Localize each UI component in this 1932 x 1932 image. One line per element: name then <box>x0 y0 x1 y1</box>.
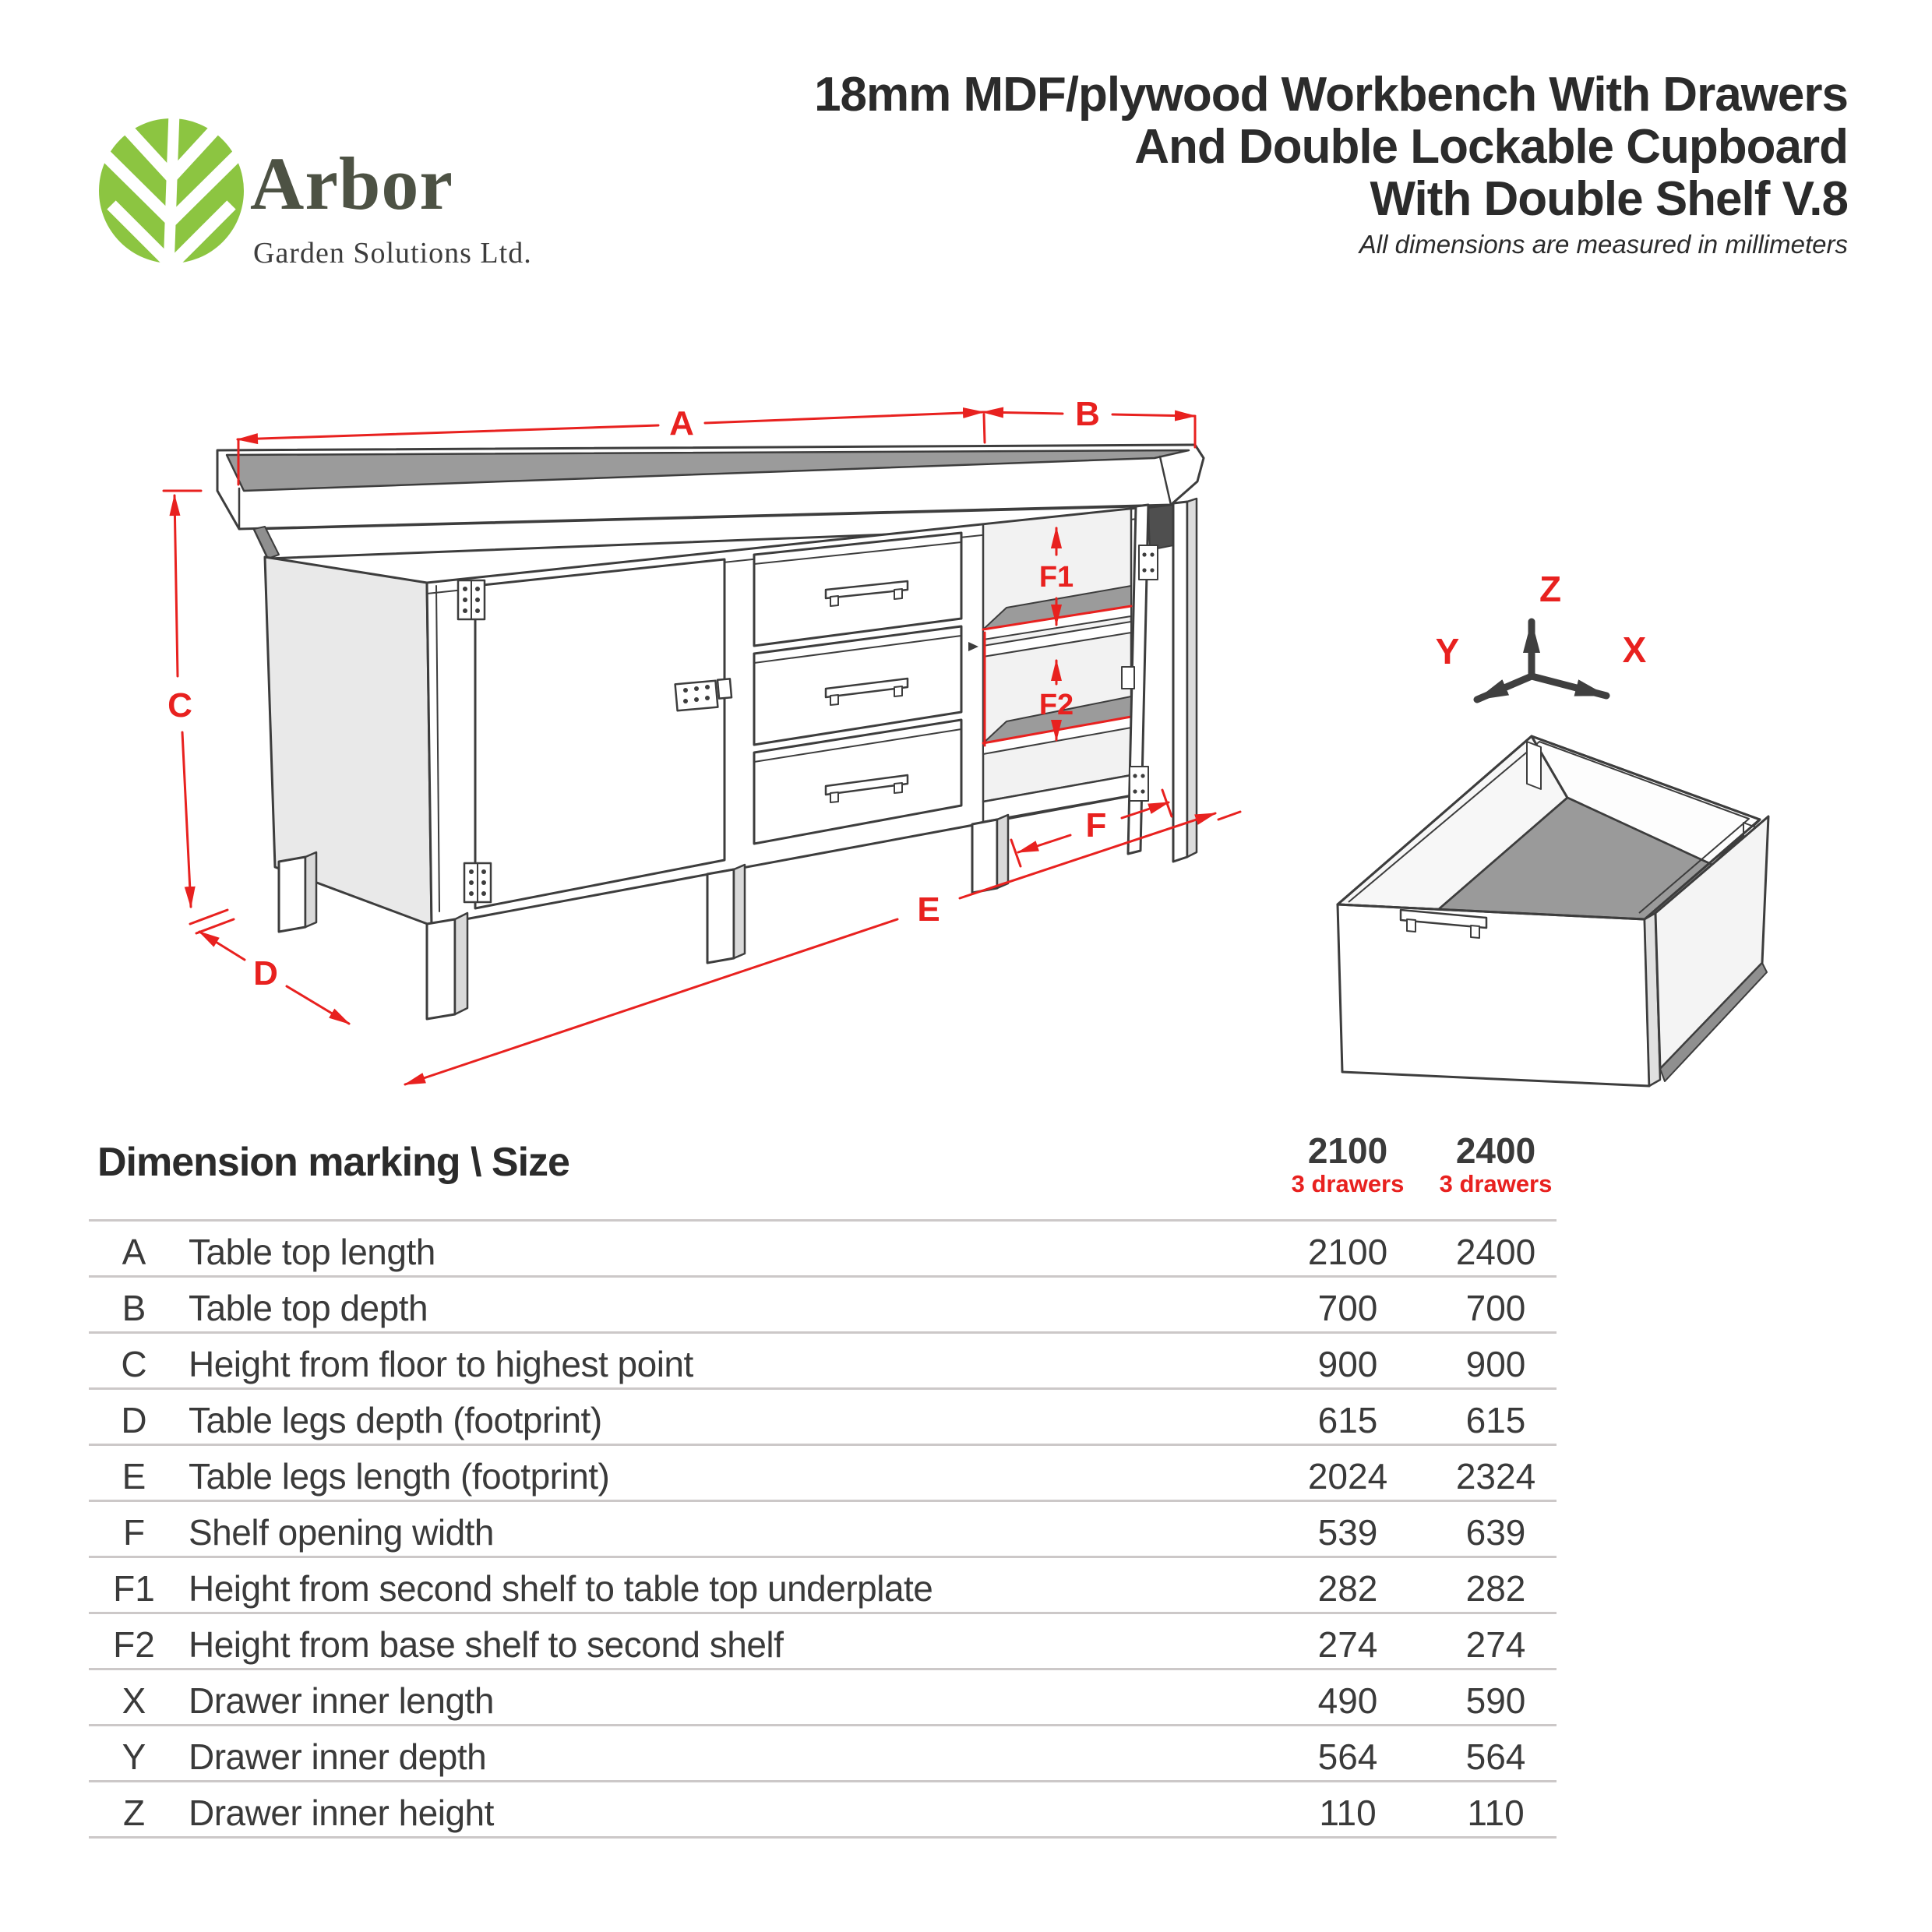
value-2100: 2100 <box>1270 1231 1426 1273</box>
brand-name: Arbor <box>250 140 453 227</box>
drawer-stack <box>754 533 978 844</box>
table-row: F2 Height from base shelf to second shel… <box>89 1612 1557 1670</box>
column-header-2400: 2400 <box>1418 1130 1574 1172</box>
value-2400: 564 <box>1418 1736 1574 1778</box>
page-title-line2: And Double Lockable Cupboard <box>814 121 1848 173</box>
dimension-description: Table legs length (footprint) <box>189 1455 609 1497</box>
value-2400: 639 <box>1418 1511 1574 1553</box>
value-2100: 110 <box>1270 1792 1426 1834</box>
dim-label-A: A <box>669 404 694 442</box>
brand-tagline: Garden Solutions Ltd. <box>253 236 532 270</box>
drawer-illustration <box>1338 736 1768 1086</box>
dimension-description: Table top length <box>189 1231 435 1273</box>
leaf-icon <box>97 113 245 292</box>
axis-label-x: X <box>1623 629 1647 670</box>
table-row: A Table top length 2100 2400 <box>89 1219 1557 1278</box>
value-2100: 900 <box>1270 1343 1426 1385</box>
value-2400: 274 <box>1418 1624 1574 1666</box>
dim-label-F: F <box>1086 806 1107 844</box>
table-row: Z Drawer inner height 110 110 <box>89 1780 1557 1839</box>
table-row: E Table legs length (footprint) 2024 232… <box>89 1444 1557 1502</box>
dimension-mark: A <box>89 1231 179 1273</box>
units-note: All dimensions are measured in millimete… <box>814 230 1848 259</box>
page-title-line3: With Double Shelf V.8 <box>814 173 1848 225</box>
dimension-description: Drawer inner height <box>189 1792 494 1834</box>
value-2100: 274 <box>1270 1624 1426 1666</box>
dimension-description: Drawer inner depth <box>189 1736 486 1778</box>
dimension-mark: E <box>89 1455 179 1497</box>
value-2400: 615 <box>1418 1399 1574 1441</box>
dimension-mark: D <box>89 1399 179 1441</box>
value-2100: 700 <box>1270 1287 1426 1329</box>
dim-label-B: B <box>1075 395 1100 433</box>
dim-label-D: D <box>253 954 278 992</box>
dimension-mark: B <box>89 1287 179 1329</box>
dim-label-F2: F2 <box>1039 689 1074 721</box>
value-2400: 282 <box>1418 1567 1574 1609</box>
value-2100: 539 <box>1270 1511 1426 1553</box>
axis-indicator: Z Y X <box>1436 569 1647 700</box>
dim-label-E: E <box>917 890 940 929</box>
table-bottom-rule <box>89 1836 1557 1839</box>
table-corner-header: Dimension marking \ Size <box>97 1139 569 1186</box>
table-row: F1 Height from second shelf to table top… <box>89 1556 1557 1614</box>
drawer-front <box>1338 904 1649 1086</box>
column-subheader-2400: 3 drawers <box>1418 1170 1574 1198</box>
value-2400: 590 <box>1418 1680 1574 1722</box>
table-row: B Table top depth 700 700 <box>89 1275 1557 1334</box>
title-block: 18mm MDF/plywood Workbench With Drawers … <box>814 69 1848 259</box>
dimension-description: Height from second shelf to table top un… <box>189 1567 933 1609</box>
column-subheader-2100: 3 drawers <box>1270 1170 1426 1198</box>
dim-label-C: C <box>167 686 192 724</box>
dimension-mark: Y <box>89 1736 179 1778</box>
hinge-icon <box>1139 545 1158 580</box>
table-row: Y Drawer inner depth 564 564 <box>89 1724 1557 1782</box>
table-row: C Height from floor to highest point 900… <box>89 1331 1557 1390</box>
value-2400: 2324 <box>1418 1455 1574 1497</box>
workbench-diagram: A B C D E F F1 F2 Z Y X <box>0 343 1932 1169</box>
dimension-mark: C <box>89 1343 179 1385</box>
value-2100: 282 <box>1270 1567 1426 1609</box>
dimension-mark: Z <box>89 1792 179 1834</box>
table-row: F Shelf opening width 539 639 <box>89 1500 1557 1558</box>
dimension-mark: F1 <box>89 1567 179 1609</box>
logo: Arbor Garden Solutions Ltd. <box>97 66 658 292</box>
page-title-line1: 18mm MDF/plywood Workbench With Drawers <box>814 69 1848 121</box>
axis-label-z: Z <box>1539 569 1561 609</box>
lock-icon <box>1122 667 1134 689</box>
hinge-icon <box>1130 767 1148 801</box>
value-2100: 2024 <box>1270 1455 1426 1497</box>
value-2400: 900 <box>1418 1343 1574 1385</box>
dimension-description: Table legs depth (footprint) <box>189 1399 602 1441</box>
axis-label-y: Y <box>1436 631 1460 672</box>
value-2100: 564 <box>1270 1736 1426 1778</box>
dimension-mark: F2 <box>89 1624 179 1666</box>
value-2400: 700 <box>1418 1287 1574 1329</box>
value-2100: 490 <box>1270 1680 1426 1722</box>
cupboard-door <box>458 559 732 908</box>
right-end-frame <box>1173 499 1197 862</box>
value-2400: 2400 <box>1418 1231 1574 1273</box>
dim-label-F1: F1 <box>1039 561 1074 594</box>
dimension-description: Drawer inner length <box>189 1680 494 1722</box>
hinge-icon <box>458 580 485 619</box>
value-2100: 615 <box>1270 1399 1426 1441</box>
dimension-description: Shelf opening width <box>189 1511 494 1553</box>
dimension-description: Table top depth <box>189 1287 428 1329</box>
hinge-icon <box>464 863 491 902</box>
dimension-description: Height from floor to highest point <box>189 1343 693 1385</box>
table-row: X Drawer inner length 490 590 <box>89 1668 1557 1726</box>
table-row: D Table legs depth (footprint) 615 615 <box>89 1387 1557 1446</box>
value-2400: 110 <box>1418 1792 1574 1834</box>
dimension-mark: F <box>89 1511 179 1553</box>
column-header-2100: 2100 <box>1270 1130 1426 1172</box>
dimension-mark: X <box>89 1680 179 1722</box>
dimension-description: Height from base shelf to second shelf <box>189 1624 783 1666</box>
